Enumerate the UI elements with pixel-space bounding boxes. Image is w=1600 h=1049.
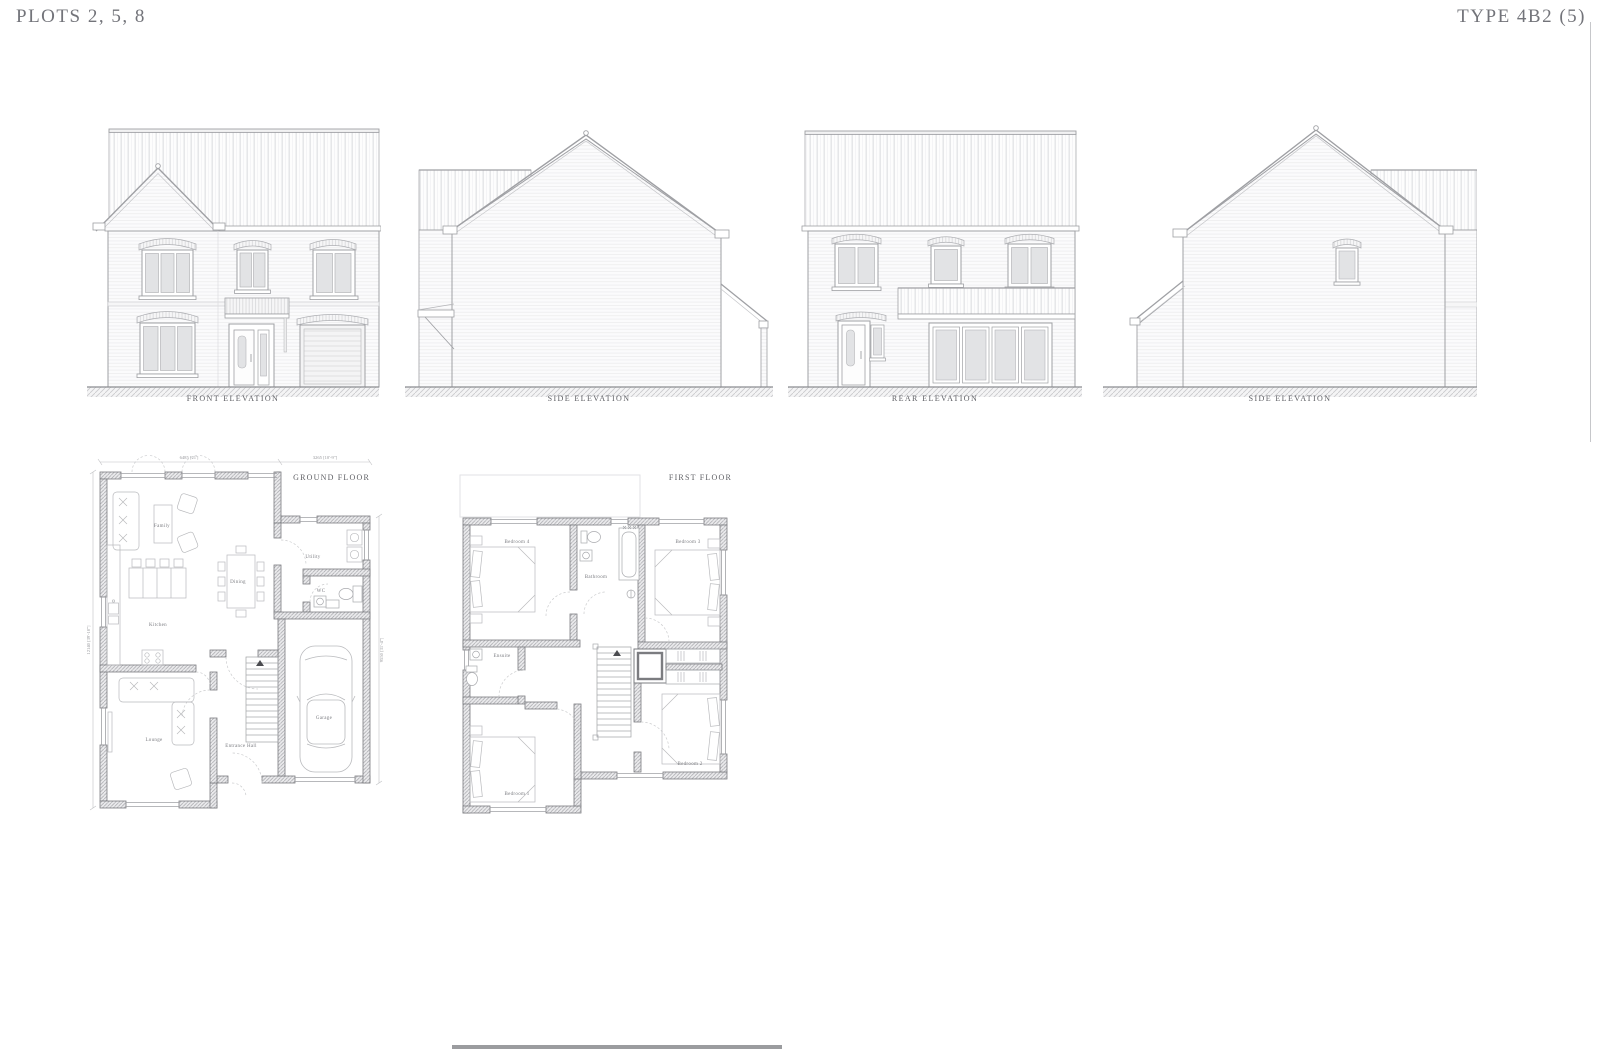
front-door (229, 324, 274, 387)
stair-cupboard (634, 649, 666, 683)
kitchen-furniture (107, 545, 186, 665)
stairs (246, 657, 278, 742)
exterior-door-swings (132, 456, 215, 473)
front-elevation-drawing (85, 118, 381, 402)
bed-bedroom3 (655, 539, 720, 626)
ground-floor-plan-drawing: 6485 [21'] 3265 [10'-9"] 12140 [39'-10"]… (86, 450, 388, 818)
garage-car (297, 646, 355, 772)
side-elevation-left-figure (405, 118, 773, 402)
exterior-windows (102, 474, 369, 807)
rear-elevation-label: REAR ELEVATION (788, 394, 1082, 403)
interior-walls (463, 525, 727, 779)
side-elevation-left-label: SIDE ELEVATION (405, 394, 773, 403)
room-label-entrance-hall: Entrance Hall (225, 744, 257, 749)
bed-bedroom2 (662, 694, 720, 764)
roof-outline-below (460, 475, 640, 517)
side-elevation-right-drawing (1103, 118, 1477, 402)
front-elevation-figure (85, 118, 381, 402)
dim-left: 12140 [39'-10"] (86, 625, 91, 655)
room-label-ensuite: Ensuite (493, 654, 511, 659)
room-label-wc: WC (317, 589, 326, 594)
rear-lean-to-roof (898, 288, 1075, 319)
bed-bedroom4 (470, 536, 535, 623)
finial (584, 131, 589, 136)
room-label-bathroom: Bathroom (585, 575, 607, 580)
side-elevation-right-figure (1103, 118, 1477, 402)
roof (802, 131, 1079, 231)
side-elevation-right-label: SIDE ELEVATION (1103, 394, 1477, 403)
front-elevation-label: FRONT ELEVATION (85, 394, 381, 403)
gable-wall (1173, 126, 1453, 387)
exterior-walls (100, 472, 370, 808)
bathroom-fixtures (580, 526, 639, 598)
rear-wall-strip (1445, 230, 1477, 387)
bifold-doors (929, 323, 1052, 387)
room-label-utility: Utility (305, 555, 320, 560)
ground-floor-plan-figure: 6485 [21'] 3265 [10'-9"] 12140 [39'-10"]… (86, 450, 388, 818)
left-lean-to (1130, 281, 1185, 387)
finial (1314, 126, 1319, 131)
garage-door (297, 315, 368, 388)
adjacent-sheet-edge-right (1590, 22, 1591, 442)
room-label-lounge: Lounge (145, 738, 163, 743)
side-elevation-left-drawing (405, 118, 773, 402)
room-label-kitchen: Kitchen (149, 623, 167, 628)
utility-fixtures (347, 530, 362, 562)
room-label-bedroom4: Bedroom 4 (504, 540, 529, 545)
drawing-sheet: PLOTS 2, 5, 8 TYPE 4B2 (5) (0, 0, 1600, 1049)
garage-lean-to (721, 284, 768, 387)
first-floor-title: FIRST FLOOR (669, 473, 732, 482)
bed-bedroom1 (470, 726, 535, 802)
room-label-bedroom2: Bedroom 2 (677, 762, 702, 767)
room-label-garage: Garage (316, 716, 333, 721)
dim-top-garage: 3265 [10'-9"] (313, 455, 338, 460)
front-wall-strip (419, 230, 452, 387)
gable-wall (443, 131, 729, 387)
rear-elevation-drawing (788, 118, 1082, 402)
room-label-dining: Dining (230, 580, 246, 585)
finial (156, 164, 161, 169)
room-label-family: Family (154, 524, 170, 529)
ground-floor-title: GROUND FLOOR (293, 473, 370, 482)
first-floor-plan-figure: Bedroom 4 Bathroom Bedroom 3 Ensuite Bed… (450, 452, 742, 820)
room-label-bedroom1: Bedroom 1 (504, 792, 529, 797)
stairs (593, 644, 631, 740)
rear-elevation-figure (788, 118, 1082, 402)
downpipe (284, 318, 287, 352)
adjacent-sheet-edge-bottom (452, 1045, 782, 1049)
first-floor-plan-drawing: Bedroom 4 Bathroom Bedroom 3 Ensuite Bed… (450, 452, 742, 820)
sheet-title-type: TYPE 4B2 (5) (1457, 6, 1586, 28)
dim-right: 9550 [31'-4"] (379, 637, 384, 662)
tv (108, 712, 112, 752)
family-furniture (113, 492, 199, 553)
sheet-title-plots: PLOTS 2, 5, 8 (16, 6, 146, 28)
lounge-furniture (108, 678, 194, 790)
room-label-bedroom3: Bedroom 3 (675, 540, 700, 545)
dimensions (90, 459, 382, 810)
